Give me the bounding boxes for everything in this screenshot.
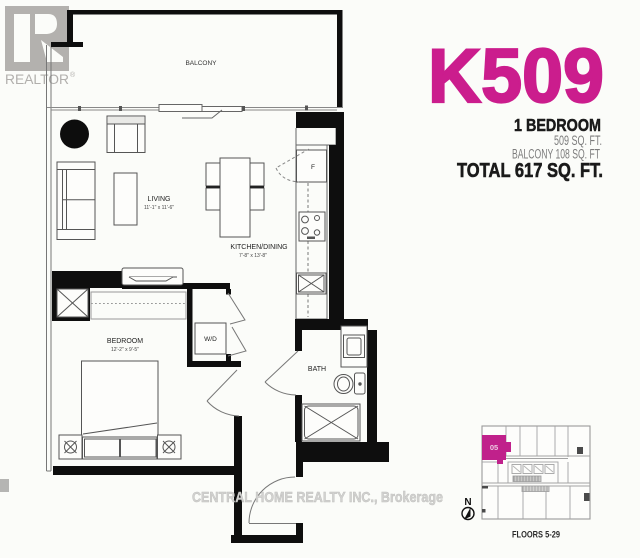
svg-text:BATH: BATH <box>308 366 326 373</box>
svg-text:12'-2" x 9'-5": 12'-2" x 9'-5" <box>111 347 139 353</box>
svg-text:K509: K509 <box>428 34 604 119</box>
svg-text:7'-8" x 13'-8": 7'-8" x 13'-8" <box>239 253 267 259</box>
svg-text:CENTRAL HOME REALTY INC., Brok: CENTRAL HOME REALTY INC., Brokerage <box>192 490 443 506</box>
svg-text:KITCHEN/DINING: KITCHEN/DINING <box>230 244 287 251</box>
svg-text:11'-1" x 11'-6": 11'-1" x 11'-6" <box>144 205 174 211</box>
svg-text:F: F <box>311 164 315 171</box>
svg-text:TOTAL 617 SQ. FT.: TOTAL 617 SQ. FT. <box>457 160 603 182</box>
svg-text:05: 05 <box>490 443 498 452</box>
svg-text:1 BEDROOM: 1 BEDROOM <box>514 115 601 135</box>
svg-text:BALCONY: BALCONY <box>185 60 217 67</box>
svg-text:LIVING: LIVING <box>148 196 171 203</box>
svg-text:W/D: W/D <box>204 336 217 343</box>
svg-text:REALTOR: REALTOR <box>5 71 69 87</box>
svg-text:BEDROOM: BEDROOM <box>107 338 143 345</box>
svg-text:FLOORS 5-29: FLOORS 5-29 <box>512 530 560 540</box>
svg-text:®: ® <box>70 71 76 79</box>
svg-text:N: N <box>464 497 471 508</box>
